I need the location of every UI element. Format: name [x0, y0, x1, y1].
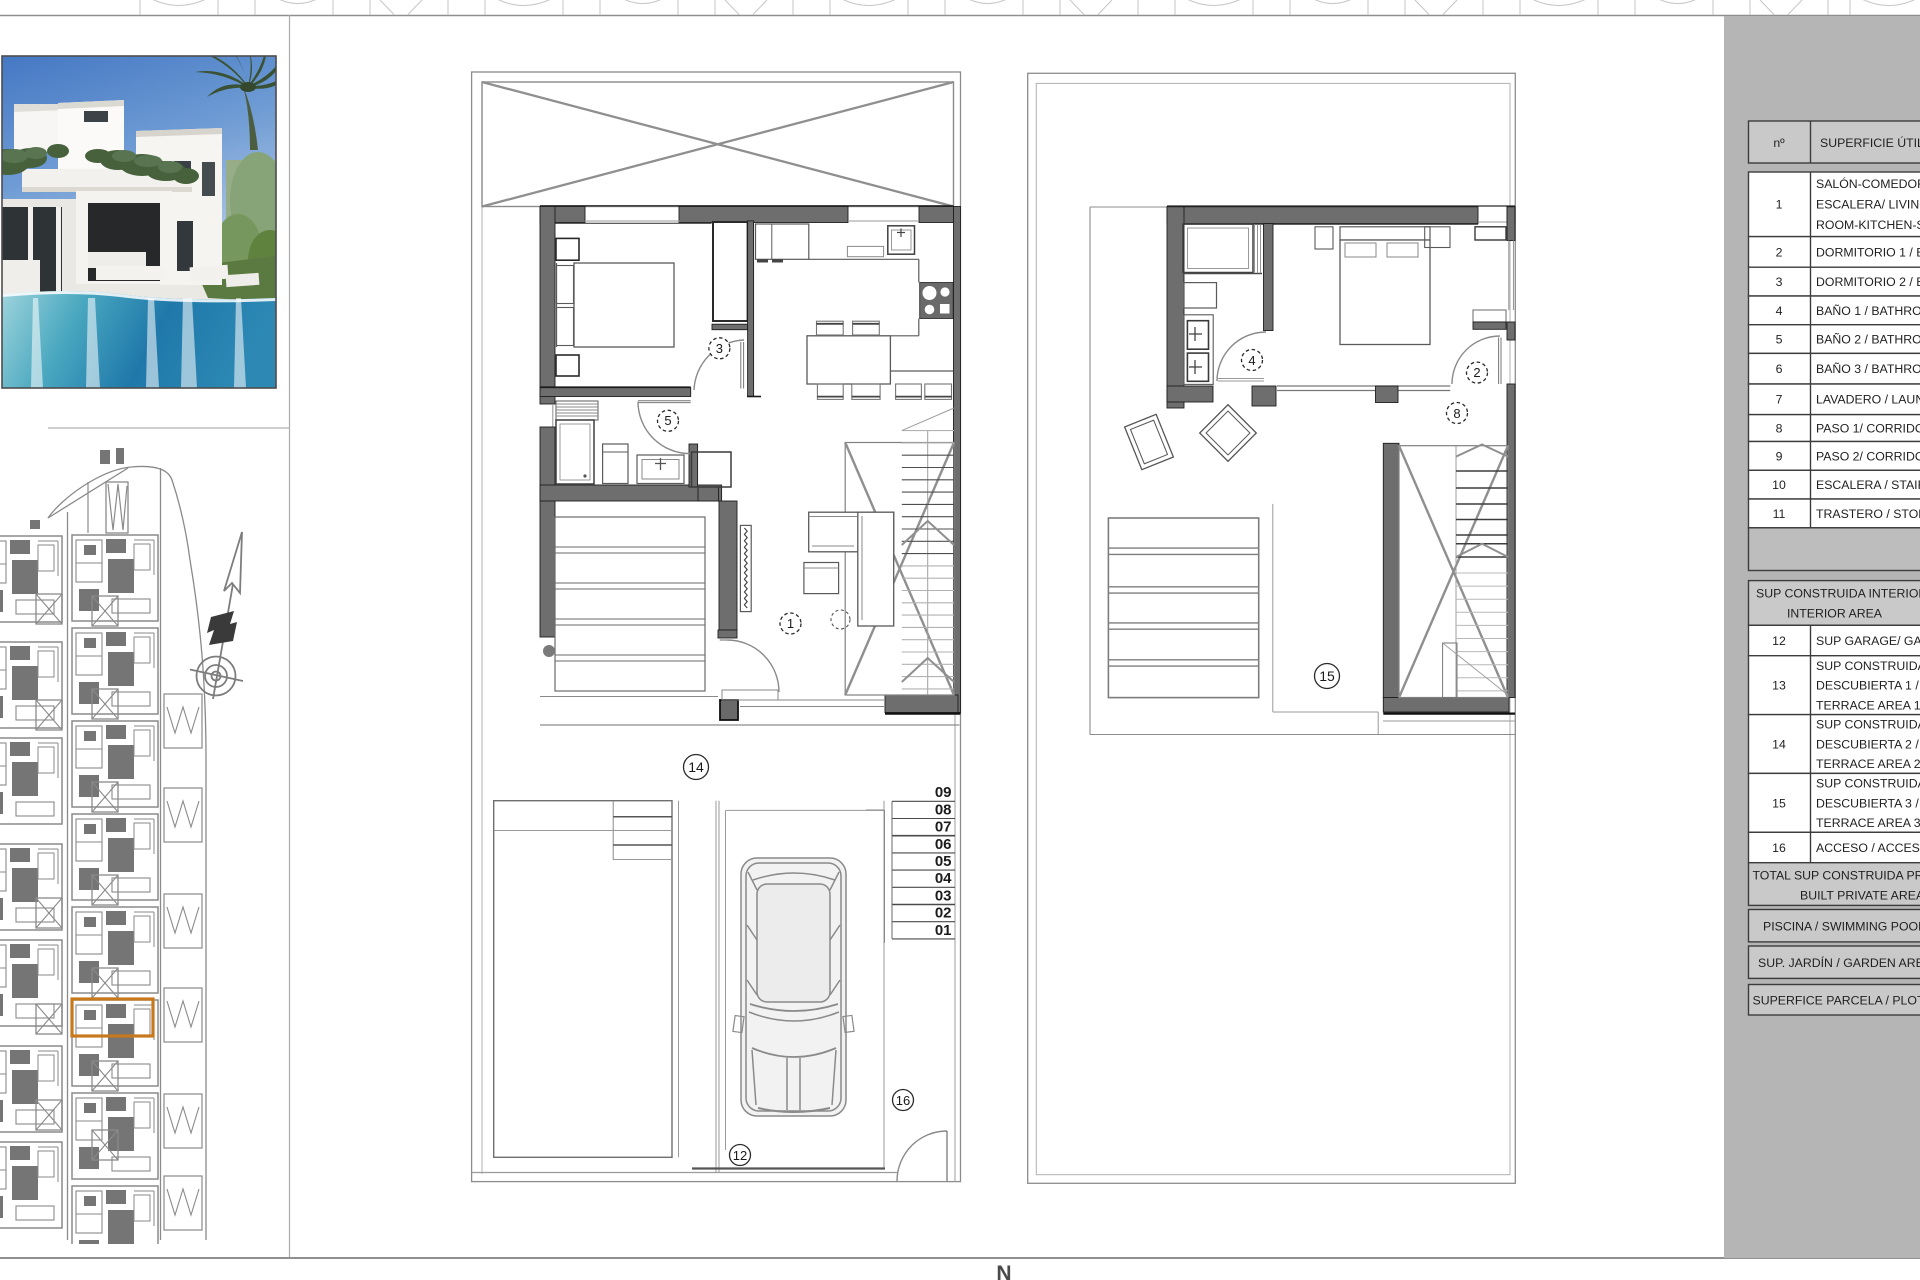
svg-text:4: 4 — [1248, 353, 1255, 368]
svg-text:DESCUBIERTA 2 /: DESCUBIERTA 2 / — [1816, 737, 1919, 751]
svg-text:6: 6 — [1776, 362, 1783, 376]
svg-text:3: 3 — [716, 341, 723, 356]
svg-text:ESCALERA/ LIVING: ESCALERA/ LIVING — [1816, 198, 1920, 212]
svg-text:SUP CONSTRUIDA: SUP CONSTRUIDA — [1816, 718, 1920, 732]
svg-text:8: 8 — [1776, 422, 1783, 436]
svg-text:05: 05 — [935, 853, 952, 870]
svg-text:ROOM-KITCHEN-STAIRS: ROOM-KITCHEN-STAIRS — [1816, 218, 1920, 232]
svg-text:INTERIOR AREA: INTERIOR AREA — [1787, 607, 1883, 621]
svg-text:TERRACE AREA 3: TERRACE AREA 3 — [1816, 816, 1920, 830]
svg-text:3: 3 — [1776, 275, 1783, 289]
svg-text:5: 5 — [664, 413, 671, 428]
svg-text:SUP CONSTRUIDA: SUP CONSTRUIDA — [1816, 659, 1920, 673]
svg-text:TERRACE AREA 1: TERRACE AREA 1 — [1816, 698, 1920, 712]
svg-text:06: 06 — [935, 836, 952, 853]
svg-text:BAÑO 3 / BATHROOM 3: BAÑO 3 / BATHROOM 3 — [1816, 362, 1920, 376]
svg-text:SUP CONSTRUIDA INTERIOR /: SUP CONSTRUIDA INTERIOR / — [1756, 587, 1920, 601]
svg-text:SUP GARAGE/ GARAGE AREA: SUP GARAGE/ GARAGE AREA — [1816, 634, 1920, 648]
svg-text:16: 16 — [1772, 841, 1786, 855]
svg-text:nº: nº — [1773, 136, 1785, 150]
svg-text:08: 08 — [935, 801, 952, 818]
svg-text:14: 14 — [1772, 737, 1786, 751]
svg-text:SALÓN-COMEDOR-: SALÓN-COMEDOR- — [1816, 176, 1920, 191]
svg-text:15: 15 — [1319, 668, 1335, 684]
svg-text:09: 09 — [935, 784, 952, 801]
svg-text:11: 11 — [1773, 507, 1786, 521]
svg-text:BAÑO 1 / BATHROOM 1: BAÑO 1 / BATHROOM 1 — [1816, 304, 1920, 318]
svg-text:SUP CONSTRUIDA: SUP CONSTRUIDA — [1816, 777, 1920, 791]
svg-text:13: 13 — [1772, 679, 1786, 693]
svg-text:8: 8 — [1453, 406, 1460, 421]
svg-text:5: 5 — [1776, 333, 1783, 347]
svg-text:01: 01 — [935, 922, 952, 939]
svg-text:4: 4 — [1776, 304, 1783, 318]
svg-text:LAVADERO / LAUNDRY: LAVADERO / LAUNDRY — [1816, 393, 1920, 407]
svg-text:14: 14 — [688, 759, 704, 775]
svg-text:TRASTERO / STORAGE: TRASTERO / STORAGE — [1816, 507, 1920, 521]
svg-text:DORMITORIO 1 / BEDROOM 1: DORMITORIO 1 / BEDROOM 1 — [1816, 245, 1920, 259]
svg-text:15: 15 — [1772, 796, 1786, 810]
svg-text:SUPERFICE PARCELA / PLOT: SUPERFICE PARCELA / PLOT — [1753, 994, 1920, 1008]
svg-text:SUPERFICIE ÚTILES / USEFUL: SUPERFICIE ÚTILES / USEFUL — [1820, 135, 1920, 150]
svg-text:7: 7 — [1776, 393, 1783, 407]
svg-text:2: 2 — [1776, 245, 1783, 259]
svg-text:DESCUBIERTA 3 /: DESCUBIERTA 3 / — [1816, 796, 1919, 810]
svg-text:ESCALERA / STAIRS: ESCALERA / STAIRS — [1816, 478, 1920, 492]
svg-text:12: 12 — [1772, 634, 1786, 648]
svg-text:1: 1 — [787, 616, 794, 631]
svg-text:PASO 1/ CORRIDOR 1: PASO 1/ CORRIDOR 1 — [1816, 422, 1920, 436]
svg-text:ACCESO / ACCESS: ACCESO / ACCESS — [1816, 841, 1920, 855]
svg-text:1: 1 — [1776, 198, 1783, 212]
svg-text:16: 16 — [896, 1093, 910, 1108]
svg-text:03: 03 — [935, 887, 952, 904]
svg-text:04: 04 — [935, 870, 952, 887]
svg-text:PISCINA / SWIMMING POOL: PISCINA / SWIMMING POOL — [1763, 920, 1920, 934]
svg-text:2: 2 — [1473, 365, 1480, 380]
svg-text:BUILT PRIVATE AREA: BUILT PRIVATE AREA — [1800, 889, 1920, 903]
svg-text:SUP. JARDÍN / GARDEN AREA: SUP. JARDÍN / GARDEN AREA — [1758, 955, 1920, 970]
svg-text:07: 07 — [935, 819, 952, 836]
svg-text:N: N — [996, 1262, 1011, 1280]
svg-text:BAÑO 2 / BATHROOM 2: BAÑO 2 / BATHROOM 2 — [1816, 333, 1920, 347]
svg-text:9: 9 — [1776, 449, 1783, 463]
svg-text:12: 12 — [733, 1148, 747, 1163]
svg-text:PASO 2/ CORRIDOR 2: PASO 2/ CORRIDOR 2 — [1816, 449, 1920, 463]
svg-text:TERRACE AREA 2: TERRACE AREA 2 — [1816, 757, 1920, 771]
svg-text:02: 02 — [935, 905, 952, 922]
svg-text:DORMITORIO 2 / BEDROOM 2: DORMITORIO 2 / BEDROOM 2 — [1816, 275, 1920, 289]
svg-text:10: 10 — [1772, 478, 1786, 492]
svg-text:TOTAL SUP CONSTRUIDA PRIVADA: TOTAL SUP CONSTRUIDA PRIVADA — [1753, 869, 1920, 883]
svg-text:DESCUBIERTA 1 /: DESCUBIERTA 1 / — [1816, 679, 1919, 693]
